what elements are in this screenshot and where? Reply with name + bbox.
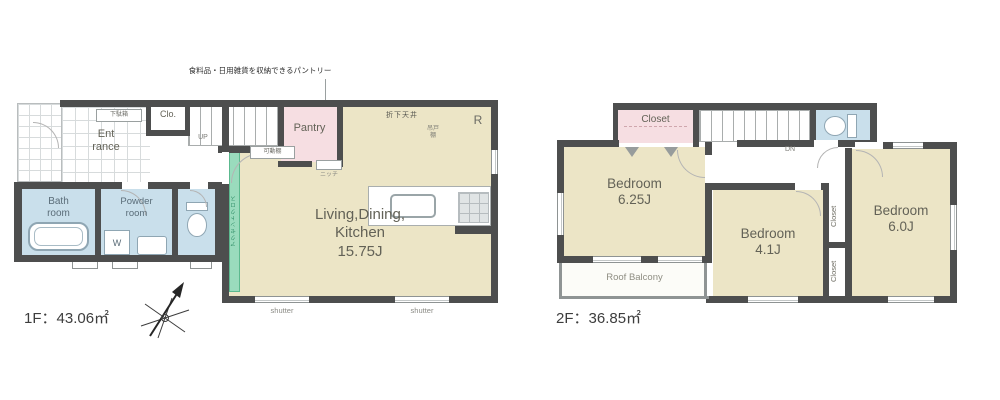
window [557,193,564,235]
wall [14,182,22,262]
door-opening [855,142,883,149]
wall [845,148,852,303]
wall [557,140,619,147]
closet-door-mark [625,147,639,157]
door-opening [814,140,838,147]
wall [172,189,178,255]
window [658,256,702,263]
dn-label: DN [778,146,802,155]
wall [693,103,699,147]
window [491,150,498,174]
window [950,205,957,250]
window [748,296,798,303]
bedroom-c-label: Bedroom 6.0J [855,203,947,236]
washer-box: W [104,230,130,255]
wall [215,182,222,262]
wall [146,130,190,136]
vent-window [190,262,212,269]
wall [455,226,498,234]
closet-hall-label: Closet [618,114,693,126]
window [888,296,934,303]
balcony-wall [559,296,709,299]
vent-window [112,262,138,269]
pantry-label: Pantry [281,122,338,135]
bathtub-inner [34,227,83,246]
closet-door-mark [664,147,678,157]
powder-label: Powder room [101,196,172,219]
door-arc [817,147,838,168]
shutter-right-label: shutter [397,306,447,315]
entrance-label: Ent rance [62,128,150,155]
toilet2-bowl-icon [824,116,846,136]
roof-balcony-label: Roof Balcony [562,272,707,284]
closet-1f-label: Clo. [151,109,185,120]
wall [14,255,222,262]
pantry-annotation: 食料品・日用雑貨を収納できるパントリー [170,66,350,75]
dropped-ceiling-label: 折下天井 [372,112,432,121]
floor2-area-label: 2F：36.85㎡ [556,310,726,328]
closet-b2: Closet [829,248,845,295]
window [593,256,641,263]
niche-box [316,160,342,170]
window [893,142,923,149]
stairs-down [699,110,810,142]
shutter-window [395,296,449,303]
shutter-left-label: shutter [257,306,307,315]
ldk-label: Living,Dining, Kitchen 15.75J [275,206,445,261]
washer-label: W [113,238,122,248]
bedroom-b-label: Bedroom 4.1J [718,226,818,259]
shoe-cabinet-box: 下駄箱 [96,109,142,122]
wall [737,140,817,147]
wall [613,103,877,110]
closet-b1-label: Closet [829,191,845,241]
hanging-cabinet-label: 吊戸 棚 [416,126,450,141]
door-opening [122,182,148,189]
toilet-bowl-icon [187,213,207,237]
vent-window [72,262,98,269]
door-opening [190,182,208,189]
wall [337,104,343,167]
closet-b1: Closet [829,191,845,241]
wall [491,100,498,303]
refrigerator-label: R [468,113,488,128]
up-label: UP [192,134,214,143]
shutter-window [255,296,309,303]
wall [278,161,312,167]
toilet2-tank-icon [847,114,857,138]
powder-sink-icon [137,236,167,255]
bath-label: Bath room [22,196,95,220]
bedroom-a-label: Bedroom 6.25J [572,176,697,209]
door-opening [705,155,712,183]
door-opening [222,152,229,184]
floor-plan-page: { "floor1": { "area_label": "1F：43.06㎡",… [0,0,1000,400]
wall [823,242,852,248]
niche-label: ニッチ [310,172,348,179]
wall [222,100,229,303]
compass-icon [136,278,194,340]
movable-shelf-box: 可動棚 [250,146,295,159]
door-opening [795,183,821,190]
closet-b2-label: Closet [829,248,845,295]
stove-icon [458,192,489,223]
